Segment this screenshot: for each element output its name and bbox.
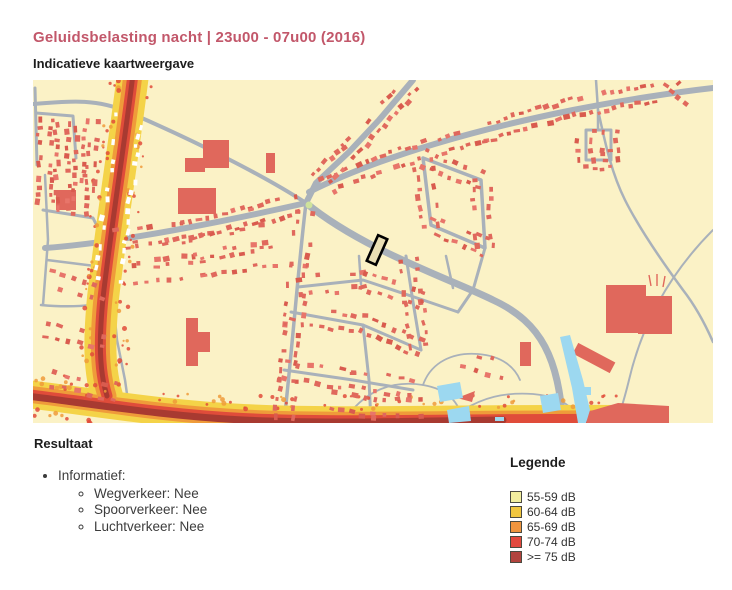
noise-map-canvas[interactable]: [33, 80, 713, 423]
page-title: Geluidsbelasting nacht | 23u00 - 07u00 (…: [33, 29, 365, 46]
legend-row: >= 75 dB: [510, 549, 576, 564]
noise-report-page: Geluidsbelasting nacht | 23u00 - 07u00 (…: [0, 0, 732, 590]
legend-swatch-55-59: [510, 491, 522, 503]
noise-map[interactable]: [33, 80, 713, 423]
legend-row: 70-74 dB: [510, 534, 576, 549]
green-space: [306, 202, 313, 209]
legend-label: 55-59 dB: [527, 490, 576, 504]
result-list: Informatief: Wegverkeer: Nee Spoorverkee…: [34, 468, 414, 535]
legend-swatch-70-74: [510, 536, 522, 548]
result-item-informatief: Informatief: Wegverkeer: Nee Spoorverkee…: [58, 468, 414, 535]
legend: Legende 55-59 dB 60-64 dB 65-69 dB 70-74…: [510, 455, 576, 564]
legend-label: 60-64 dB: [527, 505, 576, 519]
legend-row: 60-64 dB: [510, 504, 576, 519]
page-subtitle: Indicatieve kaartweergave: [33, 56, 194, 71]
legend-row: 65-69 dB: [510, 519, 576, 534]
result-subitem-spoorverkeer: Spoorverkeer: Nee: [94, 502, 414, 519]
legend-swatch-65-69: [510, 521, 522, 533]
legend-label: 65-69 dB: [527, 520, 576, 534]
result-heading: Resultaat: [34, 436, 414, 451]
legend-row: 55-59 dB: [510, 489, 576, 504]
result-subitem-wegverkeer: Wegverkeer: Nee: [94, 486, 414, 503]
result-section: Resultaat Informatief: Wegverkeer: Nee S…: [34, 436, 414, 535]
legend-label: 70-74 dB: [527, 535, 576, 549]
legend-swatch-60-64: [510, 506, 522, 518]
legend-swatch-75-plus: [510, 551, 522, 563]
legend-rows: 55-59 dB 60-64 dB 65-69 dB 70-74 dB >= 7…: [510, 489, 576, 564]
result-item-label: Informatief:: [58, 468, 126, 483]
legend-heading: Legende: [510, 455, 576, 470]
result-sublist: Wegverkeer: Nee Spoorverkeer: Nee Luchtv…: [58, 486, 414, 536]
legend-label: >= 75 dB: [527, 550, 576, 564]
result-subitem-luchtverkeer: Luchtverkeer: Nee: [94, 519, 414, 536]
